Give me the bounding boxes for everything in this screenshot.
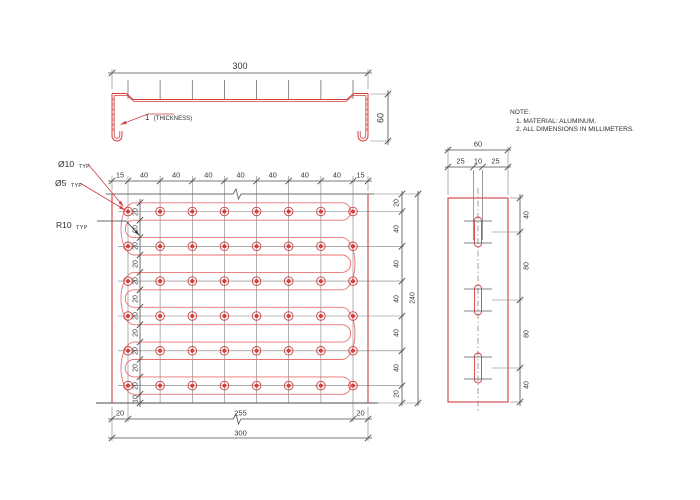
- hole-inner-circle: [351, 244, 355, 248]
- top-dim-label: 40: [301, 172, 309, 180]
- top-dim-label: 15: [356, 172, 364, 180]
- side-width-sub-label: 25: [456, 158, 464, 166]
- right-dim-label: 40: [394, 329, 401, 337]
- hole-diameter-value: Ø10: [58, 159, 74, 169]
- hole-inner-circle: [287, 210, 291, 214]
- note-item-2: 2. ALL DIMENSIONS IN MILLIMETERS.: [516, 127, 634, 134]
- hole-inner-circle: [126, 349, 130, 353]
- plan-right-overall-label: 240: [409, 292, 416, 304]
- drawing-geometry: [0, 0, 700, 500]
- side-right-dim-label: 40: [523, 211, 530, 219]
- hole-inner-circle: [287, 384, 291, 388]
- hole-inner-circle: [190, 349, 194, 353]
- bottom-dim-label: 255: [234, 410, 247, 418]
- hole-inner-circle: [158, 279, 162, 283]
- top-dim-label: 40: [268, 172, 276, 180]
- hole-inner-circle: [351, 349, 355, 353]
- pitch-dim-label: 20: [132, 277, 139, 285]
- pitch-dim-label: 20: [132, 242, 139, 250]
- pitch-dim-label: 20: [132, 295, 139, 303]
- hole-inner-circle: [126, 210, 130, 214]
- hole-diameter-callout: Ø10 TYP: [58, 155, 90, 171]
- hole-inner-circle: [222, 210, 226, 214]
- pitch-dim-label: 20: [132, 260, 139, 268]
- inner-hole-diameter-typ: TYP: [71, 183, 83, 189]
- hole-inner-circle: [255, 210, 259, 214]
- hole-inner-circle: [190, 279, 194, 283]
- hole-inner-circle: [255, 279, 259, 283]
- hole-inner-circle: [319, 384, 323, 388]
- pitch-dim-label: 20: [132, 364, 139, 372]
- cad-drawing-canvas: 300 60 1 (THICKNESS) Ø10 TYP Ø5 TYP R10 …: [0, 0, 700, 500]
- pitch-dim-label: 20: [132, 347, 139, 355]
- right-dim-label: 40: [394, 364, 401, 372]
- hole-inner-circle: [222, 349, 226, 353]
- pitch-dim-label: 20: [132, 312, 139, 320]
- profile-top-inner: [114, 96, 366, 102]
- top-dim-label: 15: [116, 172, 124, 180]
- hole-diameter-typ: TYP: [79, 164, 91, 170]
- pitch-bottom-dim-label: 10: [132, 395, 139, 403]
- top-dim-label: 40: [333, 172, 341, 180]
- hole-inner-circle: [351, 314, 355, 318]
- side-width-sub-label: 10: [474, 158, 482, 166]
- inner-hole-diameter-value: Ø5: [55, 178, 66, 188]
- pitch-dim-label: 20: [132, 208, 139, 216]
- profile-right-wall-inner: [360, 96, 366, 139]
- right-dim-label: 20: [394, 390, 401, 398]
- profile-left-wall-inner: [114, 96, 120, 139]
- plan-bottom-overall-label: 300: [234, 429, 247, 437]
- right-dim-label: 40: [394, 295, 401, 303]
- hole-inner-circle: [158, 314, 162, 318]
- hole-inner-circle: [287, 279, 291, 283]
- profile-right-wall-outer: [358, 94, 368, 142]
- radius-callout: R10 TYP: [56, 216, 88, 232]
- hole-inner-circle: [287, 349, 291, 353]
- hole-inner-circle: [351, 279, 355, 283]
- hole-inner-circle: [190, 384, 194, 388]
- bottom-dim-label: 20: [356, 410, 364, 418]
- hole-inner-circle: [351, 210, 355, 214]
- leader-line: [80, 183, 125, 210]
- top-dim-label: 40: [140, 172, 148, 180]
- hole-inner-circle: [255, 244, 259, 248]
- hole-inner-circle: [158, 384, 162, 388]
- profile-left-wall-outer: [112, 94, 122, 142]
- hole-inner-circle: [287, 314, 291, 318]
- profile-top-outer: [112, 94, 368, 100]
- profile-width-dim-label: 300: [232, 62, 247, 71]
- side-right-dim-label: 80: [523, 330, 530, 338]
- side-width-dim-label: 60: [474, 141, 482, 149]
- note-item-1: 1. MATERIAL: ALUMINUM.: [516, 119, 596, 126]
- thickness-caption: (THICKNESS): [154, 116, 192, 122]
- break-symbol: [233, 189, 241, 199]
- pitch-dim-label: 20: [132, 225, 139, 233]
- hole-inner-circle: [222, 384, 226, 388]
- thickness-value: 1: [145, 113, 149, 122]
- hole-inner-circle: [158, 210, 162, 214]
- hole-inner-circle: [222, 244, 226, 248]
- top-dim-label: 40: [172, 172, 180, 180]
- hole-inner-circle: [319, 279, 323, 283]
- hole-inner-circle: [190, 210, 194, 214]
- leader-arrowhead: [119, 205, 125, 210]
- hole-inner-circle: [255, 384, 259, 388]
- hole-inner-circle: [319, 210, 323, 214]
- radius-value: R10: [56, 220, 72, 230]
- hole-inner-circle: [126, 314, 130, 318]
- hole-inner-circle: [319, 314, 323, 318]
- leader-arrowhead: [121, 121, 127, 125]
- hole-inner-circle: [190, 314, 194, 318]
- hole-inner-circle: [126, 384, 130, 388]
- bottom-dim-label: 20: [116, 410, 124, 418]
- hole-inner-circle: [126, 244, 130, 248]
- right-dim-label: 40: [394, 225, 401, 233]
- pitch-dim-label: 20: [132, 382, 139, 390]
- top-dim-label: 40: [204, 172, 212, 180]
- hole-inner-circle: [222, 314, 226, 318]
- hole-inner-circle: [287, 244, 291, 248]
- hole-inner-circle: [126, 279, 130, 283]
- hole-inner-circle: [351, 384, 355, 388]
- right-dim-label: 20: [394, 199, 401, 207]
- side-right-dim-label: 40: [523, 381, 530, 389]
- hole-inner-circle: [158, 349, 162, 353]
- hole-inner-circle: [319, 244, 323, 248]
- side-right-dim-label: 80: [523, 262, 530, 270]
- hole-inner-circle: [319, 349, 323, 353]
- note-heading: NOTE:: [510, 110, 530, 117]
- hole-inner-circle: [255, 314, 259, 318]
- thickness-callout: 1 (THICKNESS): [145, 108, 192, 124]
- hole-inner-circle: [222, 279, 226, 283]
- side-width-sub-label: 25: [491, 158, 499, 166]
- profile-height-dim-label: 60: [377, 112, 386, 122]
- hole-inner-circle: [190, 244, 194, 248]
- inner-hole-diameter-callout: Ø5 TYP: [55, 174, 82, 190]
- right-dim-label: 40: [394, 260, 401, 268]
- top-dim-label: 40: [236, 172, 244, 180]
- radius-typ: TYP: [76, 225, 88, 231]
- hole-inner-circle: [255, 349, 259, 353]
- coolant-channel: [121, 203, 355, 394]
- pitch-dim-label: 20: [132, 329, 139, 337]
- hole-inner-circle: [158, 244, 162, 248]
